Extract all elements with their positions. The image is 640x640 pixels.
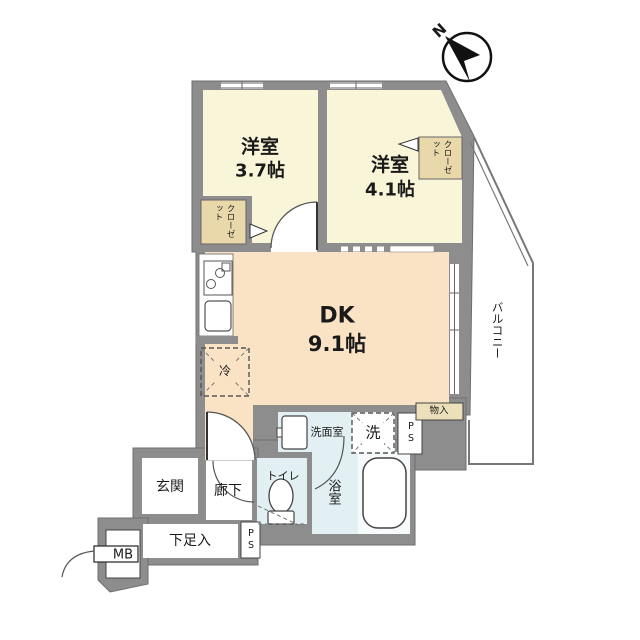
window-bedroom1 — [221, 82, 263, 89]
sink-icon — [205, 301, 231, 331]
closet2-label: クローゼット — [424, 140, 458, 176]
dk-size: 9.1帖 — [308, 332, 366, 356]
ps-lower-label: PS — [245, 528, 256, 552]
bedroom2-name: 洋室 — [371, 155, 409, 177]
fridge-label: 冷 — [219, 365, 231, 379]
vanity-icon — [277, 416, 307, 449]
shoe-storage-label: 下足入 — [169, 533, 211, 549]
window-dk-balcony — [450, 264, 459, 394]
dk-name: DK — [319, 303, 354, 328]
balcony-railing-inner — [470, 142, 528, 266]
corridor-label: 廊下 — [214, 483, 242, 499]
meter-box-label: MB — [113, 549, 133, 564]
kitchen-counter — [199, 254, 233, 336]
ps-upper-label: PS — [405, 421, 416, 445]
closet1-label: クローゼット — [207, 204, 241, 241]
kitchen-wall-stub — [196, 336, 238, 344]
bath-label: 浴室 — [325, 479, 340, 505]
compass-icon — [443, 33, 491, 82]
floor-plan: N 洋室 3.7帖 洋室 4.1帖 DK 9.1帖 バルコニー クローゼット ク… — [0, 0, 640, 640]
entrance-label: 玄関 — [156, 479, 184, 495]
toilet-label: トイレ — [267, 471, 300, 484]
storage-label: 物入 — [429, 407, 448, 418]
stove-icon — [204, 261, 232, 295]
balcony-label: バルコニー — [490, 301, 503, 359]
washer-label: 洗 — [365, 424, 380, 441]
bedroom2-size: 4.1帖 — [365, 181, 415, 202]
bedroom1-size: 3.7帖 — [235, 162, 285, 183]
bedroom1-name: 洋室 — [241, 137, 279, 159]
washroom-label: 洗面室 — [311, 427, 344, 440]
window-bedroom2 — [330, 82, 382, 89]
bathtub-icon — [363, 458, 406, 528]
